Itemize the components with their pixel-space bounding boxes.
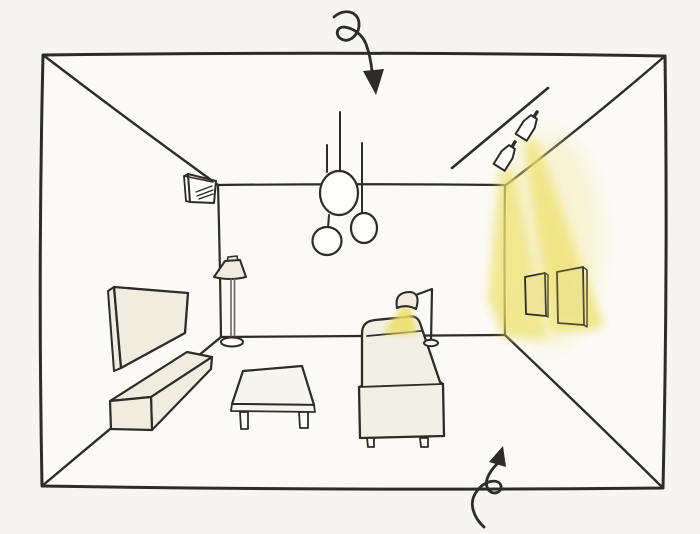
room-sketch [0, 0, 700, 534]
sofa-leg-left [367, 438, 374, 447]
reading-lamp-head [397, 292, 418, 309]
pendant-globe-right [351, 213, 377, 243]
table-leg-right [299, 412, 308, 428]
table-leg-left [240, 412, 248, 429]
sofa-leg-right [420, 438, 428, 447]
reading-lamp-base [424, 340, 438, 346]
pendant-globe-left [313, 227, 342, 255]
floor-lamp-base [221, 338, 243, 347]
console-end-face [110, 397, 152, 430]
sketch-canvas [0, 0, 700, 534]
table-apron [231, 404, 315, 412]
table-top [232, 366, 314, 405]
pendant-globe-large [320, 171, 358, 215]
